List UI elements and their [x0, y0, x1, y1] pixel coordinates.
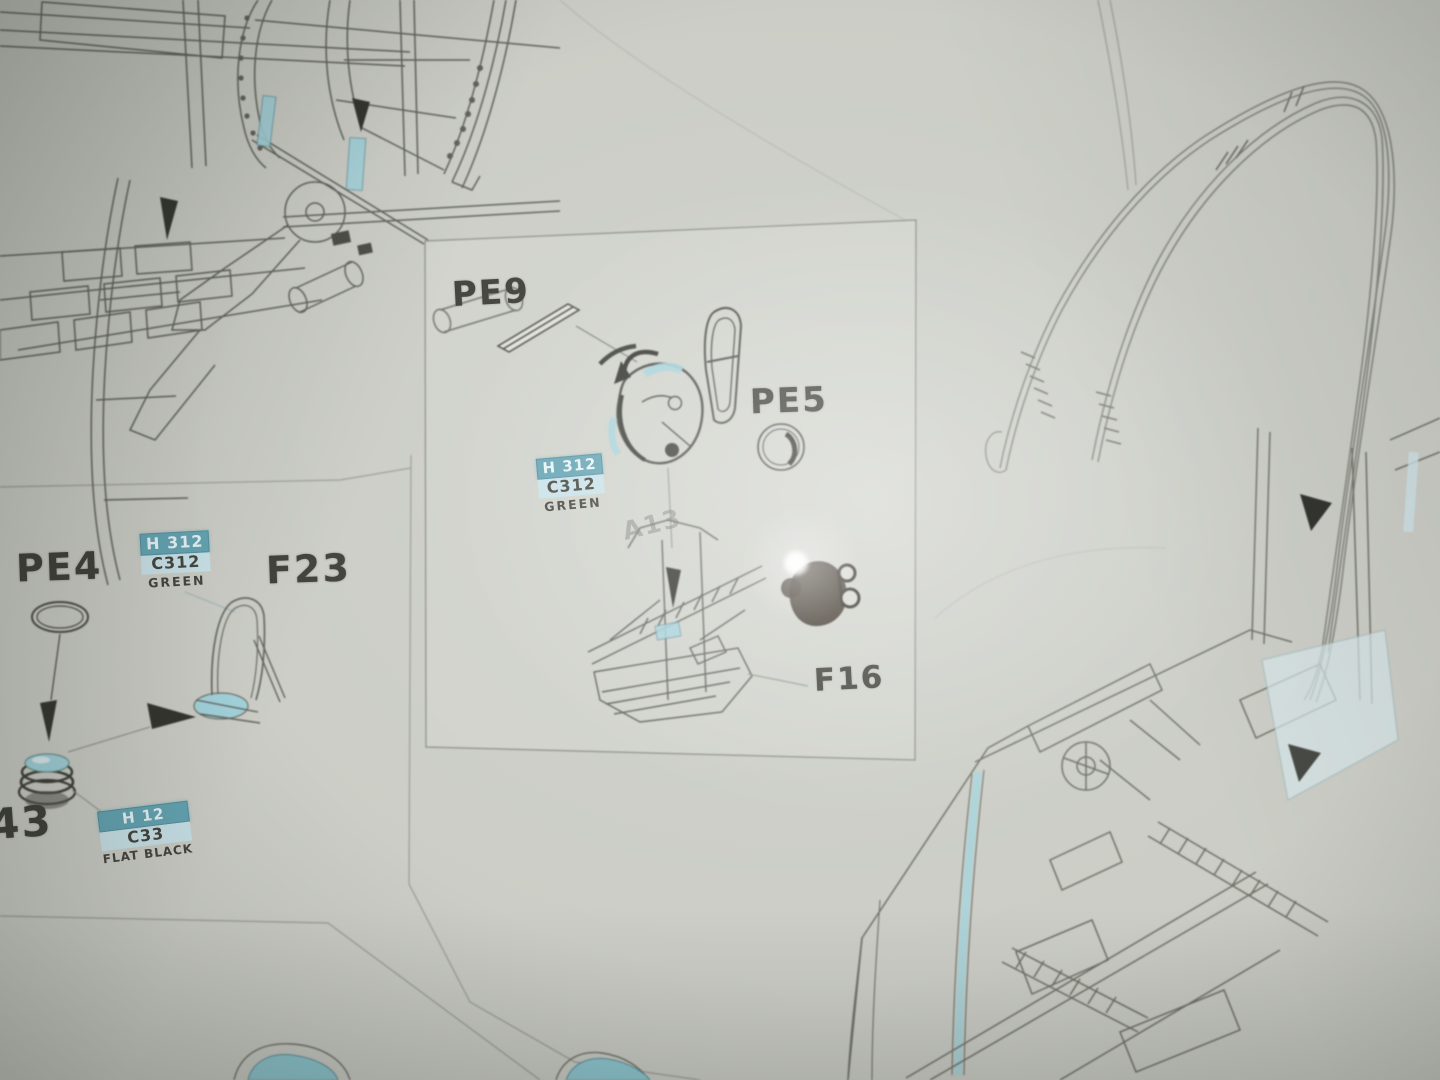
paint-callout-flat-black: H 12 C33 FLAT BLACK	[97, 801, 194, 866]
part-label-43: 43	[0, 800, 54, 846]
paint-code-c: C312	[141, 552, 211, 574]
flash-glare-spot	[781, 549, 811, 577]
part-label-pe4: PE4	[15, 547, 103, 588]
part-label-pe9: PE9	[451, 274, 530, 312]
part-label-f23: F23	[265, 549, 351, 590]
instruction-sheet-photo: PE9 PE5 F16 A13 PE4 F23 43 H 312 C312 GR…	[0, 0, 1440, 1080]
part-label-a13: A13	[620, 505, 684, 544]
paint-callout-green-inset: H 312 C312 GREEN	[536, 453, 607, 513]
paint-color-name: GREEN	[142, 573, 212, 590]
paint-callout-green-left: H 312 C312 GREEN	[140, 530, 212, 589]
labels-layer: PE9 PE5 F16 A13 PE4 F23 43 H 312 C312 GR…	[0, 0, 1440, 1080]
part-label-f16: F16	[813, 662, 885, 697]
part-label-pe5: PE5	[749, 383, 828, 420]
